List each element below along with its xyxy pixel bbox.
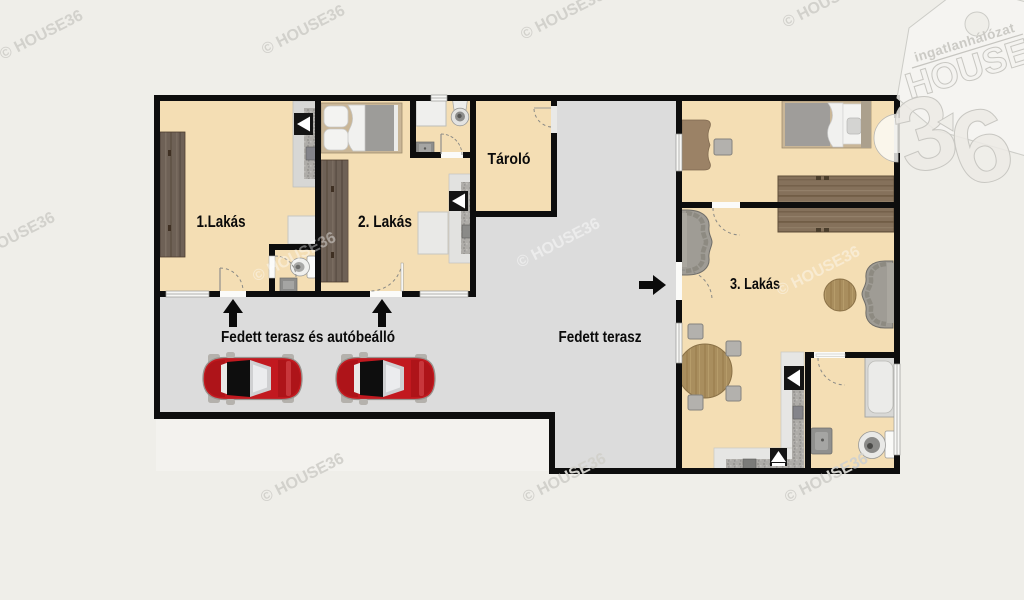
- svg-text:Tároló: Tároló: [488, 151, 531, 168]
- svg-text:1.Lakás: 1.Lakás: [197, 212, 246, 231]
- svg-text:2. Lakás: 2. Lakás: [358, 212, 412, 231]
- svg-text:3. Lakás: 3. Lakás: [730, 276, 780, 293]
- svg-text:Fedett terasz: Fedett terasz: [559, 329, 642, 346]
- svg-text:Fedett terasz és autóbeálló: Fedett terasz és autóbeálló: [221, 329, 395, 346]
